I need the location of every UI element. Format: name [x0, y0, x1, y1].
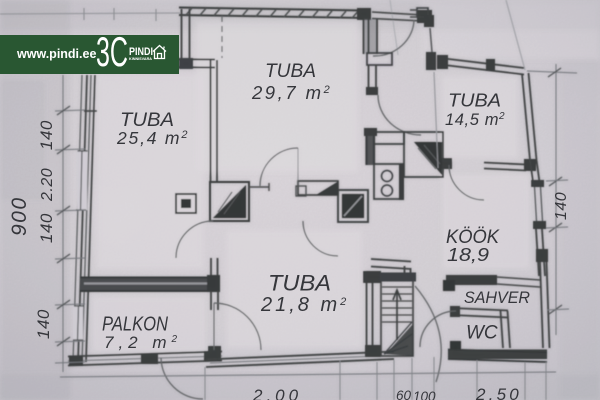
svg-text:7,2 m2: 7,2 m2 [104, 333, 182, 352]
svg-text:KINNISVARA: KINNISVARA [129, 57, 152, 61]
svg-text:TUBA: TUBA [265, 61, 316, 82]
svg-text:14,5 m2: 14,5 m2 [445, 111, 505, 129]
svg-text:140: 140 [34, 309, 53, 339]
svg-text:www.pindi.ee: www.pindi.ee [16, 47, 96, 61]
svg-text:140: 140 [37, 213, 56, 243]
svg-text:3C: 3C [96, 28, 128, 75]
svg-text:900: 900 [8, 196, 31, 236]
svg-text:140: 140 [553, 192, 570, 220]
svg-text:2,00: 2,00 [252, 386, 302, 400]
svg-text:100: 100 [413, 389, 436, 400]
svg-text:25,4 m2: 25,4 m2 [116, 128, 189, 148]
svg-text:60: 60 [396, 388, 412, 400]
svg-text:18,9: 18,9 [447, 244, 489, 265]
svg-text:WC: WC [466, 323, 498, 344]
svg-text:140: 140 [37, 120, 56, 150]
svg-text:SAHVER: SAHVER [464, 288, 530, 307]
svg-text:2,50: 2,50 [475, 385, 522, 400]
svg-text:TUBA: TUBA [268, 271, 331, 296]
svg-text:2.20: 2.20 [39, 168, 56, 202]
svg-text:TUBA: TUBA [448, 91, 501, 111]
svg-text:29,7 m2: 29,7 m2 [251, 82, 332, 103]
svg-text:21,8 m2: 21,8 m2 [260, 294, 349, 316]
